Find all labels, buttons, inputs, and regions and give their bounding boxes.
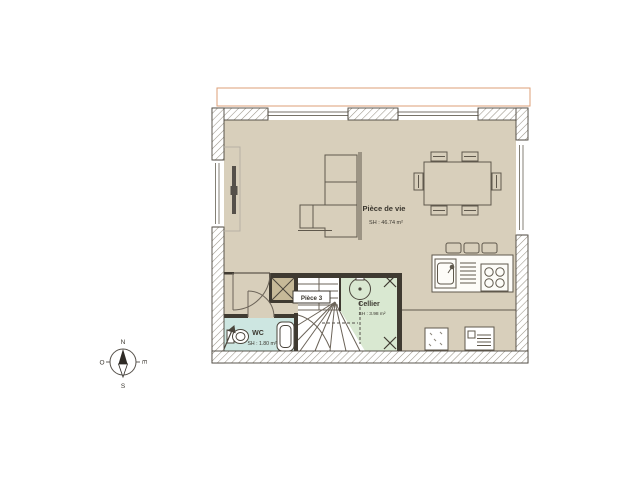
- wc-area: SH : 1.80 m²: [247, 341, 276, 347]
- cellier-area: SH : 3.98 m²: [359, 311, 386, 317]
- living-room-label: Pièce de vie: [363, 204, 406, 213]
- right-wall-upper: [516, 108, 528, 140]
- wc-label: WC: [252, 330, 264, 337]
- compass-icon: N S O E: [99, 339, 147, 390]
- stairs-cellier-divider: [339, 278, 341, 311]
- compass-east-label: E: [141, 360, 148, 365]
- floor-plan-canvas: Pièce de vie SH : 46.74 m² Cellier SH : …: [0, 0, 640, 480]
- cellier-label: Cellier: [358, 301, 380, 308]
- water-heater-dot: [358, 287, 361, 290]
- bottom-wall: [212, 351, 528, 363]
- wc-stairs-wall: [294, 313, 298, 351]
- wc-top-wall-right: [274, 314, 294, 318]
- counter-top: [432, 255, 513, 292]
- terrace-outline: [217, 88, 530, 106]
- floor-plan-svg: Pièce de vie SH : 46.74 m² Cellier SH : …: [0, 0, 640, 480]
- left-wall-upper: [212, 108, 224, 160]
- piece3-label: Pièce 3: [301, 295, 323, 302]
- right-wall-lower: [516, 235, 528, 363]
- wall-block-top: [269, 273, 402, 278]
- dishwasher-icon: [425, 328, 448, 350]
- living-room-area: SH : 46.74 m²: [369, 220, 403, 226]
- compass-west-label: O: [99, 360, 104, 367]
- cellier-right-wall: [397, 278, 402, 351]
- sideboard-center: [231, 186, 238, 195]
- compass-south-label: S: [121, 383, 126, 390]
- compass-needle-north: [119, 349, 128, 364]
- left-wall-lower: [212, 227, 224, 363]
- compass-north-label: N: [121, 339, 126, 346]
- top-wall-mid: [348, 108, 398, 120]
- wc-top-wall-left: [224, 314, 248, 318]
